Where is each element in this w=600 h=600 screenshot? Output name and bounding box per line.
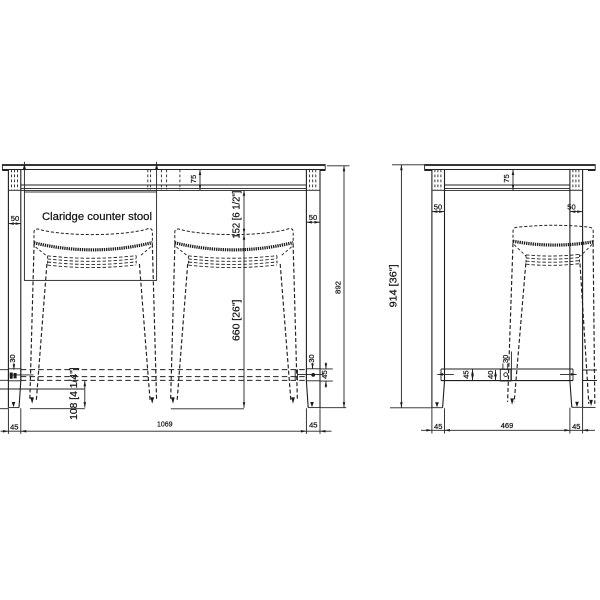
svg-text:108 [4 1/4"]: 108 [4 1/4"] bbox=[69, 367, 80, 420]
svg-text:50: 50 bbox=[11, 214, 19, 223]
svg-text:45: 45 bbox=[434, 422, 442, 431]
svg-text:152 [6 1/2"]: 152 [6 1/2"] bbox=[231, 190, 242, 238]
svg-text:30: 30 bbox=[501, 355, 510, 363]
svg-text:50: 50 bbox=[434, 203, 442, 212]
svg-text:50: 50 bbox=[567, 203, 575, 212]
svg-text:45: 45 bbox=[572, 422, 580, 431]
svg-text:40: 40 bbox=[486, 371, 495, 379]
svg-text:45: 45 bbox=[320, 370, 329, 378]
svg-text:30: 30 bbox=[8, 354, 17, 362]
svg-text:45: 45 bbox=[309, 421, 317, 430]
svg-text:30: 30 bbox=[307, 354, 316, 362]
svg-text:45: 45 bbox=[10, 423, 18, 432]
svg-text:892: 892 bbox=[334, 281, 343, 294]
svg-text:45: 45 bbox=[461, 370, 470, 378]
svg-text:75: 75 bbox=[189, 175, 198, 183]
svg-text:Claridge counter stool: Claridge counter stool bbox=[42, 211, 152, 223]
svg-text:50: 50 bbox=[309, 213, 317, 222]
svg-text:469: 469 bbox=[501, 421, 514, 430]
svg-text:660 [26"]: 660 [26"] bbox=[231, 299, 242, 341]
svg-text:914 [36"]: 914 [36"] bbox=[389, 264, 400, 307]
svg-text:75: 75 bbox=[502, 174, 511, 182]
svg-text:1069: 1069 bbox=[157, 420, 173, 429]
